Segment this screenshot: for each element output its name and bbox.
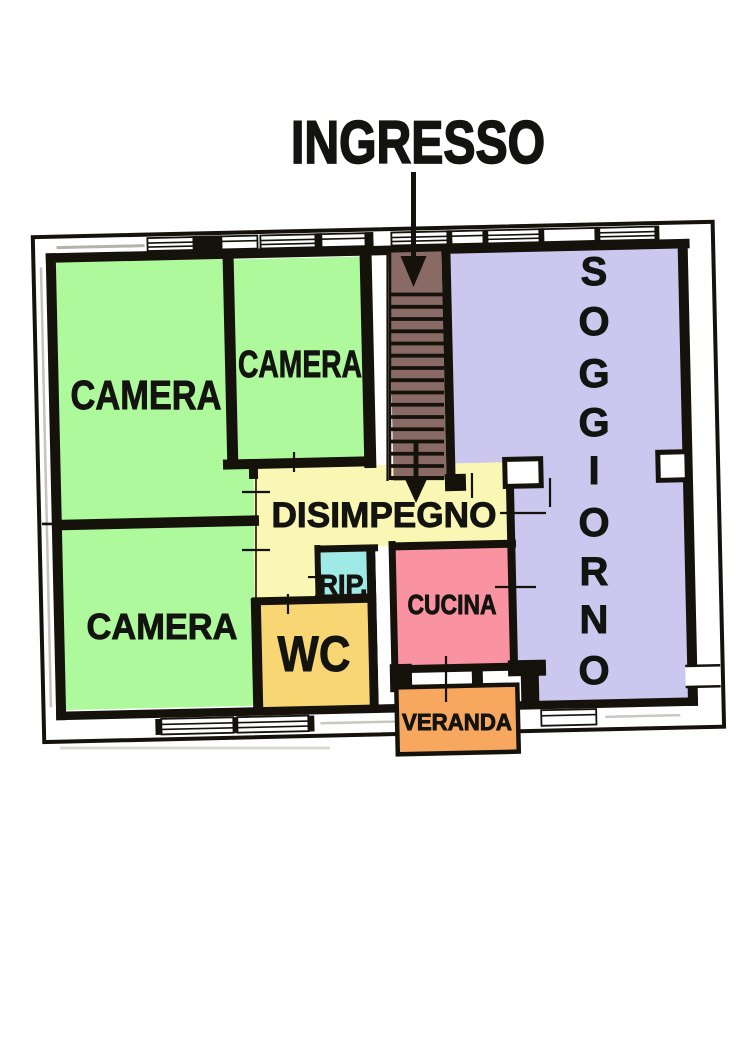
svg-text:RIP.: RIP. <box>319 569 368 600</box>
svg-text:O: O <box>578 501 609 545</box>
svg-text:VERANDA: VERANDA <box>402 709 512 735</box>
svg-text:O: O <box>578 649 609 693</box>
svg-text:G: G <box>578 401 609 445</box>
svg-text:S: S <box>581 250 608 294</box>
svg-text:CUCINA: CUCINA <box>408 589 497 620</box>
svg-text:CAMERA: CAMERA <box>238 344 362 386</box>
svg-text:INGRESSO: INGRESSO <box>291 109 545 176</box>
svg-text:R: R <box>580 550 609 594</box>
svg-text:G: G <box>578 352 609 396</box>
svg-text:DISIMPEGNO: DISIMPEGNO <box>272 496 497 535</box>
svg-text:CAMERA: CAMERA <box>71 372 222 418</box>
svg-text:WC: WC <box>278 626 351 682</box>
svg-text:CAMERA: CAMERA <box>87 606 238 647</box>
svg-text:O: O <box>578 300 609 344</box>
svg-text:N: N <box>580 598 609 642</box>
svg-text:I: I <box>588 449 599 493</box>
